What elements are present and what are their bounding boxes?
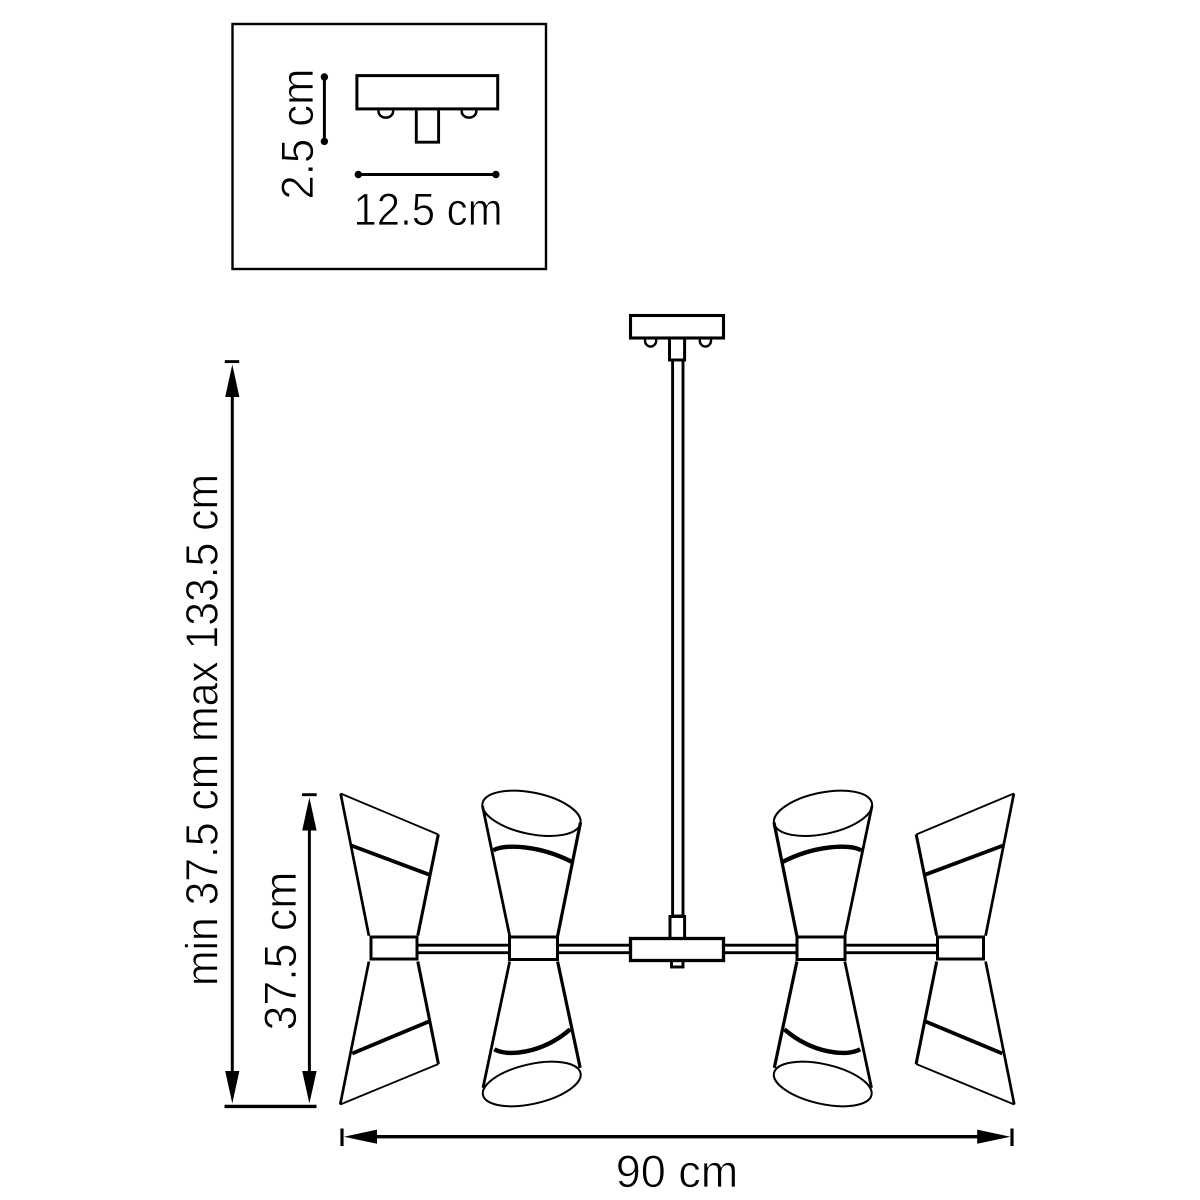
svg-text:2.5 cm: 2.5 cm — [272, 69, 323, 200]
svg-text:90 cm: 90 cm — [616, 1146, 739, 1197]
svg-text:37.5 cm: 37.5 cm — [255, 872, 306, 1031]
svg-text:min 37.5 cm max 133.5 cm: min 37.5 cm max 133.5 cm — [177, 474, 228, 986]
svg-text:12.5 cm: 12.5 cm — [354, 184, 503, 235]
